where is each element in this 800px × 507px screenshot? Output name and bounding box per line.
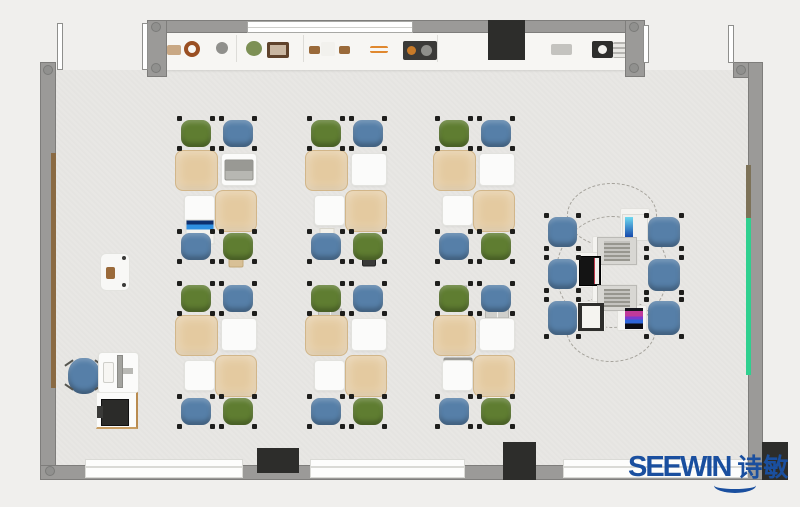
chair-foot — [477, 259, 482, 264]
chair-foot — [679, 255, 684, 260]
chair-seat — [481, 120, 511, 147]
chair-foot — [477, 116, 482, 121]
student-chair-blue — [478, 282, 514, 315]
student-chair-blue — [220, 117, 256, 150]
logo-brand-text: SEEWIN — [628, 453, 730, 481]
collab-device-monitor-gray — [597, 237, 637, 265]
chair-foot — [252, 424, 257, 429]
shelf-item — [267, 42, 289, 58]
collab-device-screen-color — [625, 308, 643, 329]
student-desk-tan — [433, 315, 476, 356]
chair-foot — [544, 288, 549, 293]
chair-foot — [219, 146, 224, 151]
wall-joint — [629, 22, 639, 32]
chair-foot — [576, 288, 581, 293]
chair-foot — [382, 424, 387, 429]
student-chair-green — [350, 230, 386, 263]
chair-foot — [349, 424, 354, 429]
wood-board — [51, 153, 56, 388]
chair-seat — [353, 285, 383, 312]
chair-foot — [340, 424, 345, 429]
structural-column — [503, 442, 536, 480]
chair-foot — [210, 229, 215, 234]
chair-foot — [468, 259, 473, 264]
chair-foot — [477, 229, 482, 234]
collab-chair-blue — [645, 214, 683, 250]
chair-foot — [177, 424, 182, 429]
chair-foot — [252, 259, 257, 264]
shelf-item — [216, 42, 228, 54]
chair-seat — [181, 120, 211, 147]
chair-foot — [435, 229, 440, 234]
chair-seat — [439, 233, 469, 260]
chair-seat — [311, 285, 341, 312]
chair-foot — [219, 229, 224, 234]
chair-foot — [510, 394, 515, 399]
student-chair-green — [308, 282, 344, 315]
shelf-divider — [236, 35, 237, 62]
chair-foot — [349, 281, 354, 286]
chair-foot — [477, 424, 482, 429]
student-chair-green — [178, 282, 214, 315]
chair-foot — [510, 281, 515, 286]
chair-foot — [477, 311, 482, 316]
chair-foot — [177, 281, 182, 286]
chair-foot — [382, 394, 387, 399]
collab-chair-blue — [645, 298, 683, 338]
chair-seat — [311, 120, 341, 147]
wood-board — [746, 165, 751, 218]
chair-foot — [252, 146, 257, 151]
chair-foot — [177, 116, 182, 121]
student-desk-tan — [345, 190, 387, 232]
chair-seat — [481, 398, 511, 425]
chair-foot — [576, 297, 581, 302]
student-chair-blue — [178, 230, 214, 263]
student-desk-tan — [433, 150, 476, 191]
chair-foot — [544, 334, 549, 339]
student-chair-green — [178, 117, 214, 150]
student-desk-tan — [215, 190, 257, 232]
chair-foot — [252, 116, 257, 121]
chair-foot — [382, 229, 387, 234]
chair-foot — [679, 290, 684, 295]
chair-foot — [544, 246, 549, 251]
printer — [101, 399, 129, 426]
chair-foot — [307, 229, 312, 234]
chair-foot — [307, 259, 312, 264]
chair-seat — [548, 301, 577, 335]
chair-seat — [353, 233, 383, 260]
shelf-item — [309, 46, 320, 54]
chair-foot — [219, 281, 224, 286]
chair-foot — [468, 394, 473, 399]
student-desk-white — [442, 195, 473, 226]
chair-foot — [644, 213, 649, 218]
chair-foot — [468, 229, 473, 234]
structural-column — [488, 20, 525, 60]
shelf-divider — [303, 35, 304, 62]
student-chair-green — [220, 395, 256, 428]
shelf-item — [370, 46, 388, 53]
wall-joint — [629, 63, 639, 73]
chair-foot — [340, 259, 345, 264]
student-chair-blue — [308, 395, 344, 428]
chair-foot — [679, 297, 684, 302]
chair-foot — [477, 281, 482, 286]
shelf-item — [167, 45, 181, 55]
chair-foot — [210, 259, 215, 264]
student-chair-green — [478, 395, 514, 428]
chair-foot — [510, 424, 515, 429]
chair-foot — [307, 281, 312, 286]
teacher-monitor-stand — [123, 368, 133, 374]
student-desk-tan — [305, 150, 348, 191]
chair-seat — [439, 398, 469, 425]
chair-foot — [219, 259, 224, 264]
collab-device-laptop-black — [579, 256, 601, 286]
chair-seat — [223, 398, 253, 425]
chair-seat — [223, 233, 253, 260]
chair-seat — [648, 259, 680, 291]
student-desk-tan — [473, 190, 515, 232]
student-desk-white — [479, 153, 515, 186]
shelf-item — [321, 42, 335, 56]
chair-foot — [219, 394, 224, 399]
chair-foot — [349, 116, 354, 121]
collab-chair-blue — [545, 298, 580, 338]
chair-foot — [679, 334, 684, 339]
window-sill — [85, 467, 243, 478]
chair-foot — [340, 394, 345, 399]
chair-foot — [510, 116, 515, 121]
chair-foot — [510, 229, 515, 234]
structural-column — [257, 448, 299, 473]
wall-joint — [151, 22, 161, 32]
door-leaf — [142, 23, 148, 70]
chair-seat — [353, 120, 383, 147]
student-chair-green — [350, 395, 386, 428]
window-sill — [310, 459, 465, 467]
student-desk-white — [184, 360, 215, 391]
shelf-item-detail — [407, 46, 416, 55]
chair-foot — [177, 146, 182, 151]
collab-chair-blue — [545, 214, 580, 250]
door-leaf — [57, 23, 63, 70]
chair-foot — [252, 311, 257, 316]
chair-foot — [252, 394, 257, 399]
chair-foot — [544, 213, 549, 218]
student-desk-white — [351, 153, 387, 186]
chair-foot — [177, 394, 182, 399]
chair-seat — [439, 285, 469, 312]
collab-chair-blue — [645, 256, 683, 294]
chair-foot — [544, 297, 549, 302]
student-desk-tan — [473, 355, 515, 397]
chair-seat — [311, 398, 341, 425]
chair-foot — [210, 281, 215, 286]
chair-foot — [349, 146, 354, 151]
chair-foot — [219, 424, 224, 429]
student-chair-green — [220, 230, 256, 263]
chair-foot — [644, 334, 649, 339]
chair-foot — [307, 311, 312, 316]
student-desk-tan — [345, 355, 387, 397]
wall-joint — [736, 65, 746, 75]
chair-foot — [644, 246, 649, 251]
chair-seat — [223, 120, 253, 147]
chair-foot — [576, 334, 581, 339]
chair-seat — [181, 233, 211, 260]
student-desk-white — [479, 318, 515, 351]
chair-foot — [435, 116, 440, 121]
chair-foot — [349, 229, 354, 234]
chair-foot — [340, 146, 345, 151]
chair-foot — [644, 255, 649, 260]
chair-seat — [481, 285, 511, 312]
student-desk-white — [314, 195, 345, 226]
chair-foot — [435, 281, 440, 286]
chair-foot — [468, 311, 473, 316]
chair-seat — [181, 398, 211, 425]
chair-foot — [252, 281, 257, 286]
window-sill — [85, 459, 243, 467]
chair-foot — [210, 394, 215, 399]
wall-joint — [45, 466, 55, 476]
chair-foot — [644, 290, 649, 295]
chair-foot — [340, 229, 345, 234]
student-desk-tan — [175, 150, 218, 191]
student-chair-green — [478, 230, 514, 263]
logo-smile-arc — [714, 478, 756, 493]
student-chair-green — [436, 117, 472, 150]
chair-foot — [468, 281, 473, 286]
chair-foot — [340, 311, 345, 316]
chair-foot — [468, 116, 473, 121]
chair-foot — [382, 281, 387, 286]
student-chair-green — [308, 117, 344, 150]
chair-seat — [353, 398, 383, 425]
chair-seat — [439, 120, 469, 147]
door-leaf — [728, 25, 734, 63]
chair-foot — [510, 311, 515, 316]
chair-foot — [177, 311, 182, 316]
chair-foot — [576, 255, 581, 260]
student-desk-white — [442, 360, 473, 391]
chair-foot — [210, 146, 215, 151]
student-desk-white — [314, 360, 345, 391]
chair-seat — [548, 217, 577, 247]
shelf-item — [551, 44, 572, 55]
student-chair-blue — [478, 117, 514, 150]
shelf-item — [246, 41, 262, 56]
seewin-logo: SEEWIN 诗敏 — [628, 453, 789, 483]
chair-foot — [644, 297, 649, 302]
chair-foot — [307, 394, 312, 399]
chair-foot — [307, 146, 312, 151]
chair-foot — [210, 116, 215, 121]
student-desk-white — [221, 318, 257, 351]
student-desk-tan — [215, 355, 257, 397]
chair-foot — [307, 424, 312, 429]
chair-seat — [548, 259, 577, 289]
screw-dot — [122, 256, 126, 260]
chair-foot — [435, 424, 440, 429]
chair-foot — [510, 259, 515, 264]
chair-seat — [481, 233, 511, 260]
screw-dot — [122, 283, 126, 287]
chair-foot — [177, 229, 182, 234]
shelf-item-detail — [421, 45, 432, 56]
student-desk-white — [351, 318, 387, 351]
student-chair-blue — [308, 230, 344, 263]
chair-foot — [435, 311, 440, 316]
chair-foot — [576, 213, 581, 218]
chair-foot — [435, 146, 440, 151]
chair-foot — [468, 146, 473, 151]
chair-foot — [382, 146, 387, 151]
desk-item-laptop-gray — [225, 159, 254, 180]
chair-foot — [576, 246, 581, 251]
collab-device-laptop-white — [578, 303, 604, 331]
student-chair-blue — [436, 395, 472, 428]
student-chair-blue — [436, 230, 472, 263]
wall-joint — [151, 63, 161, 73]
side-table-item — [106, 267, 115, 279]
green-board — [746, 218, 751, 375]
shelf-item-detail — [598, 45, 607, 54]
chair-seat — [181, 285, 211, 312]
chair-foot — [177, 259, 182, 264]
shelf-divider — [437, 35, 438, 62]
chair-foot — [510, 146, 515, 151]
chair-foot — [349, 259, 354, 264]
chair-foot — [382, 116, 387, 121]
teacher-keyboard — [103, 362, 114, 383]
chair-seat — [223, 285, 253, 312]
chair-foot — [544, 255, 549, 260]
chair-foot — [210, 424, 215, 429]
chair-foot — [477, 146, 482, 151]
chair-foot — [435, 259, 440, 264]
teacher-chair — [68, 358, 100, 394]
chair-foot — [435, 394, 440, 399]
chair-foot — [340, 116, 345, 121]
student-chair-blue — [220, 282, 256, 315]
chair-seat — [311, 233, 341, 260]
chair-seat — [648, 301, 680, 335]
window — [247, 21, 413, 33]
chair-foot — [468, 424, 473, 429]
chair-foot — [219, 116, 224, 121]
chair-foot — [307, 116, 312, 121]
student-desk-tan — [305, 315, 348, 356]
chair-foot — [679, 213, 684, 218]
shelf-item — [339, 46, 350, 54]
chair-foot — [219, 311, 224, 316]
chair-foot — [349, 311, 354, 316]
floor-plan-canvas: SEEWIN 诗敏 — [0, 0, 800, 507]
chair-foot — [210, 311, 215, 316]
student-chair-blue — [178, 395, 214, 428]
student-chair-blue — [350, 282, 386, 315]
student-chair-green — [436, 282, 472, 315]
chair-foot — [679, 246, 684, 251]
wall-joint — [43, 65, 53, 75]
chair-foot — [252, 229, 257, 234]
chair-foot — [382, 311, 387, 316]
chair-foot — [340, 281, 345, 286]
collab-chair-blue — [545, 256, 580, 292]
window-sill — [310, 467, 465, 478]
chair-foot — [477, 394, 482, 399]
door-leaf — [643, 25, 649, 63]
shelf-item — [184, 41, 200, 57]
student-chair-blue — [350, 117, 386, 150]
chair-foot — [382, 259, 387, 264]
student-desk-tan — [175, 315, 218, 356]
chair-seat — [648, 217, 680, 247]
chair-foot — [349, 394, 354, 399]
